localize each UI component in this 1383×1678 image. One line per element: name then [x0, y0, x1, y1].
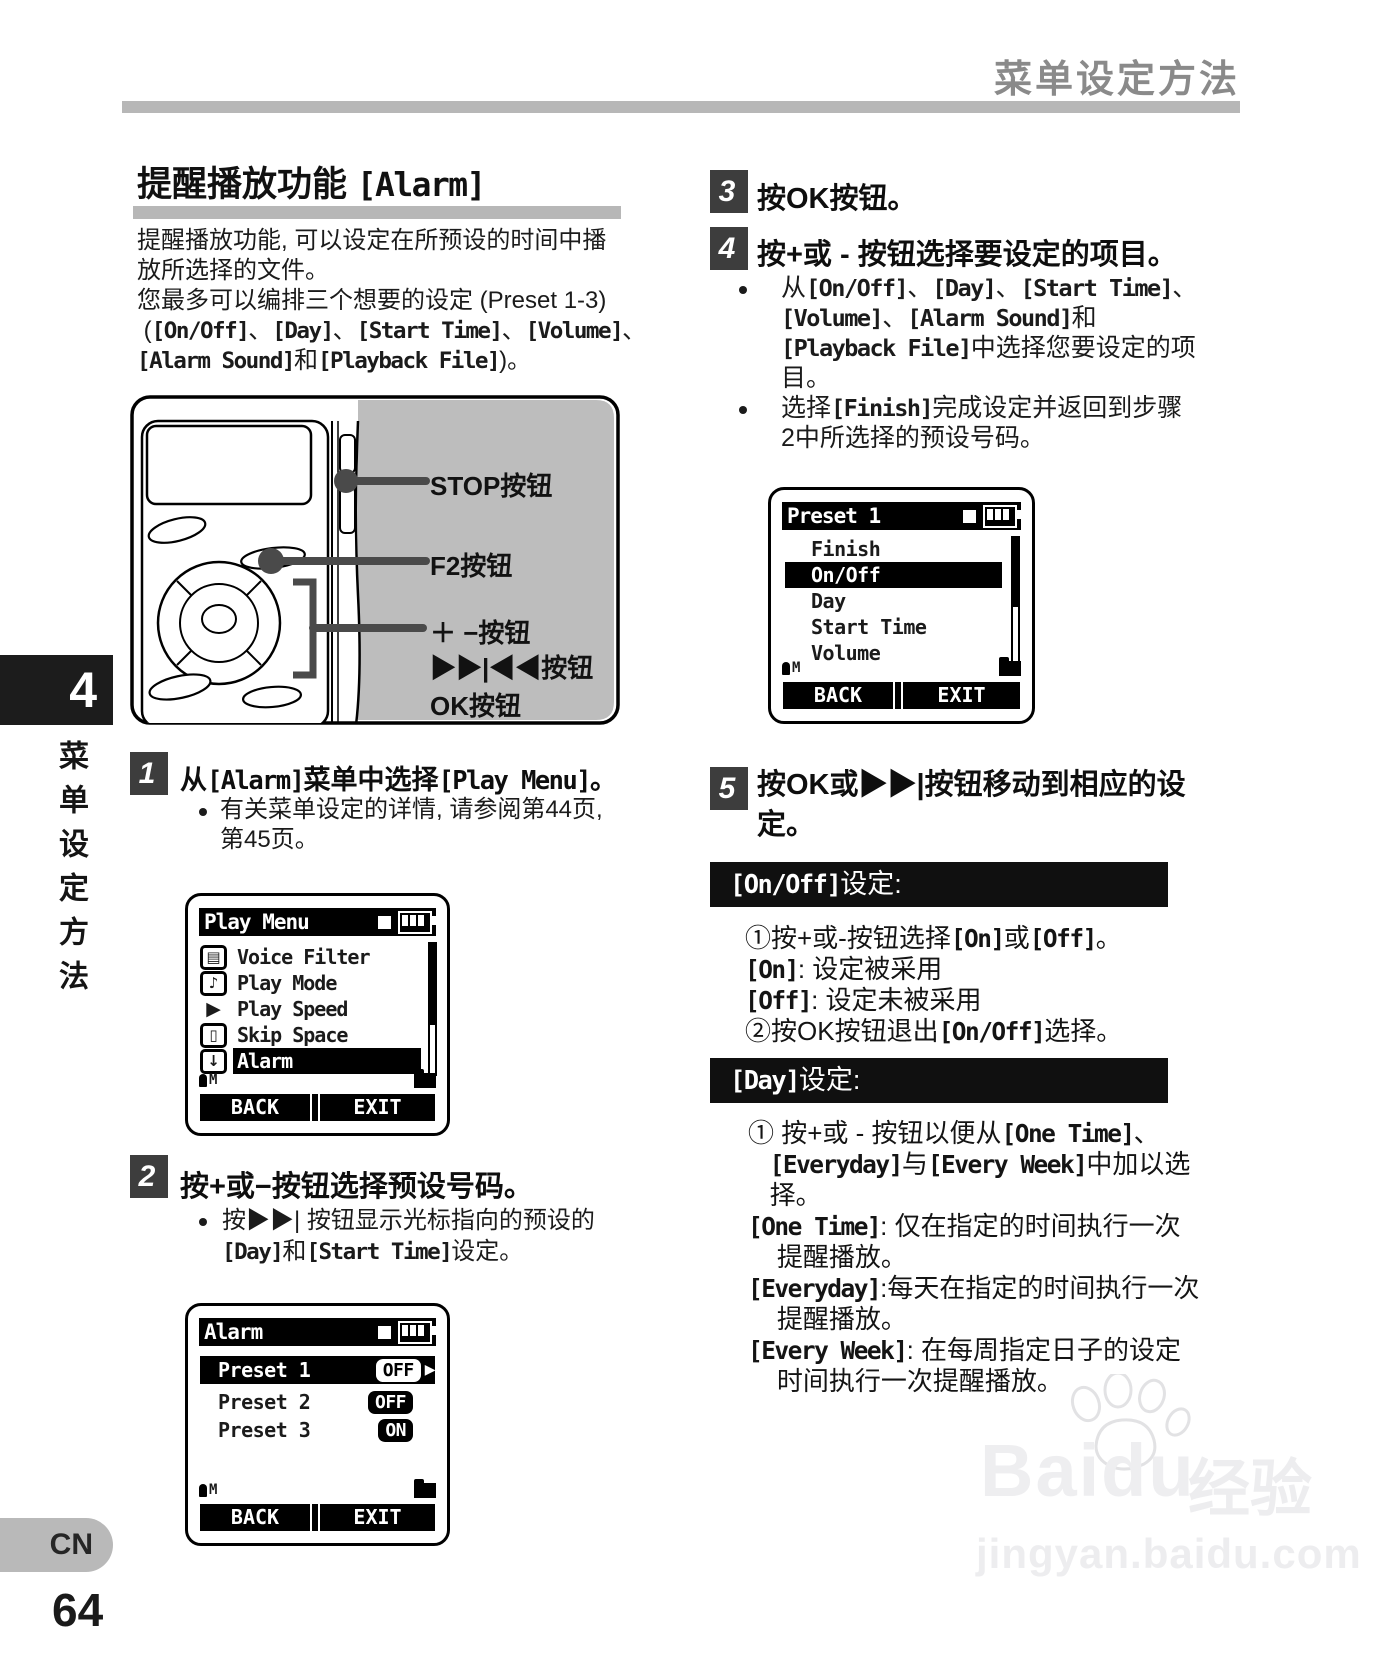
- softkey-divider: [312, 1094, 318, 1121]
- alarm-row-preset-2: Preset 2 OFF: [200, 1388, 435, 1416]
- intro-line: 提醒播放功能, 可以设定在所预设的时间中播: [137, 226, 646, 256]
- bullet-line: 第45页。: [220, 825, 603, 855]
- body-line: [Off]: 设定未被采用: [745, 985, 1122, 1016]
- body-line: [Everyday]与[Every Week]中加以选: [748, 1149, 1199, 1180]
- lcd-status-row: M: [199, 1071, 436, 1089]
- lcd-title-bar: Preset 1: [782, 502, 1021, 530]
- stop-status-icon: [378, 1326, 391, 1339]
- lcd-scrollbar: [428, 942, 437, 1076]
- step-3-number: 3: [710, 170, 748, 213]
- step-4-number: 4: [710, 227, 748, 270]
- step-4-heading: 按+或 - 按钮选择要设定的项目。: [757, 231, 1177, 273]
- body-line: [Every Week]: 在每周指定日子的设定: [748, 1335, 1199, 1366]
- mic-mode-icon: M: [199, 1483, 217, 1497]
- mic-mode-label: M: [792, 661, 800, 675]
- onoff-section-body: ①按+或-按钮选择[On]或[Off]。 [On]: 设定被采用 [Off]: …: [745, 923, 1122, 1047]
- lcd-status-row: M: [782, 659, 1021, 677]
- language-tab: CN: [0, 1518, 113, 1572]
- stop-button-label: STOP按钮: [430, 466, 552, 503]
- menu-item-label: Voice Filter: [233, 944, 374, 970]
- chapter-number-tab: 4: [0, 655, 113, 725]
- preset-item-finish: Finish: [785, 536, 1002, 562]
- baidu-jingyan-watermark: Baidu 经验 jingyan.baidu.com: [960, 1380, 1360, 1630]
- preset-label: Preset 2: [218, 1390, 310, 1414]
- bullet-line: 从[On/Off]、[Day]、[Start Time]、: [781, 273, 1197, 303]
- onoff-section-banner: [On/Off]设定:: [710, 862, 1168, 907]
- day-section-body: ① 按+或 - 按钮以便从[One Time]、 [Everyday]与[Eve…: [748, 1118, 1199, 1397]
- alarm-row-preset-3: Preset 3 ON: [200, 1416, 435, 1444]
- softkey-divider: [895, 682, 901, 709]
- bullet-line: 按▶▶| 按钮显示光标指向的预设的: [222, 1205, 595, 1236]
- preset-item-start-time: Start Time: [785, 614, 1002, 640]
- device-ok-button: [202, 605, 236, 633]
- lcd-title-bar: Alarm: [199, 1318, 436, 1346]
- softkey-back: BACK: [200, 1504, 310, 1531]
- lcd-alarm-screen: Alarm Preset 1 OFF ▶ Preset 2 OFF Preset…: [185, 1303, 450, 1546]
- step-5-number: 5: [710, 767, 748, 810]
- mic-mode-label: M: [209, 1073, 217, 1087]
- bullet-line: 目。: [781, 363, 1197, 393]
- lcd-status-row: M: [199, 1481, 436, 1499]
- preset-label: Preset 3: [218, 1418, 310, 1442]
- body-line: 择。: [748, 1180, 1199, 1211]
- bullet-line: 有关菜单设定的详情, 请参阅第44页,: [220, 795, 603, 825]
- body-line: 提醒播放。: [748, 1304, 1199, 1335]
- lcd-title-text: Alarm: [199, 1320, 378, 1344]
- intro-line: 放所选择的文件。: [137, 256, 646, 286]
- bullet-line: [Volume]、[Alarm Sound]和: [781, 303, 1197, 333]
- menu-item-play-speed: ▶ Play Speed: [200, 996, 421, 1022]
- ok-button-label: OK按钮: [430, 686, 521, 723]
- menu-item-voice-filter: ▤ Voice Filter: [200, 944, 421, 970]
- step-1-number: 1: [130, 752, 168, 795]
- menu-item-label: Play Mode: [233, 970, 340, 996]
- bullet-dot: [199, 1218, 207, 1226]
- preset-value-badge: OFF: [368, 1391, 413, 1414]
- battery-icon: [398, 1321, 432, 1344]
- body-line: [On]: 设定被采用: [745, 954, 1122, 985]
- battery-icon: [983, 505, 1017, 528]
- header-rule: [122, 101, 1240, 113]
- softkey-exit: EXIT: [320, 1094, 435, 1121]
- step-2-number: 2: [130, 1155, 168, 1198]
- bullet-line: 选择[Finish]完成设定并返回到步骤: [781, 393, 1182, 423]
- body-line: ②按OK按钮退出[On/Off]选择。: [745, 1016, 1122, 1047]
- bullet-dot: [739, 286, 747, 294]
- lcd-title-text: Play Menu: [199, 910, 378, 934]
- mic-mode-icon: M: [199, 1073, 217, 1087]
- f2-button-label: F2按钮: [430, 546, 512, 583]
- watermark-brand: Baidu: [980, 1428, 1196, 1513]
- page-number: 64: [52, 1583, 103, 1637]
- sidebar-vertical-title: 菜单设定方法: [48, 740, 92, 1004]
- microphone-icon: ♪: [200, 971, 227, 996]
- device-side-button: [340, 487, 355, 533]
- watermark-url: jingyan.baidu.com: [976, 1530, 1362, 1578]
- step-1-heading: 从[Alarm]菜单中选择[Play Menu]。: [180, 758, 617, 797]
- battery-icon: [398, 911, 432, 934]
- lcd-title-text: Preset 1: [782, 504, 963, 528]
- menu-item-label: Skip Space: [233, 1022, 351, 1048]
- page-header-title: 菜单设定方法: [600, 48, 1240, 103]
- lcd-play-menu-screen: Play Menu ▤ Voice Filter ♪ Play Mode ▶ P…: [185, 893, 450, 1136]
- document-icon: ▤: [200, 945, 227, 970]
- preset-value-badge: OFF: [376, 1359, 421, 1382]
- softkey-back: BACK: [200, 1094, 310, 1121]
- softkey-exit: EXIT: [903, 682, 1020, 709]
- intro-line: ([On/Off]、[Day]、[Start Time]、[Volume]、: [137, 316, 646, 346]
- bullet-line: 2中所选择的预设号码。: [781, 423, 1182, 453]
- device-display: [147, 426, 311, 504]
- watermark-brand-cn: 经验: [1188, 1438, 1312, 1528]
- body-line: ① 按+或 - 按钮以便从[One Time]、: [748, 1118, 1199, 1149]
- preset-value-badge: ON: [378, 1419, 413, 1442]
- intro-line: [Alarm Sound]和[Playback File])。: [137, 346, 646, 376]
- preset-label: Preset 1: [218, 1358, 310, 1382]
- step-4-bullet-2: 选择[Finish]完成设定并返回到步骤 2中所选择的预设号码。: [781, 393, 1182, 453]
- preset-item-onoff-selected: On/Off: [785, 562, 1002, 588]
- alarm-row-preset-1: Preset 1 OFF ▶: [200, 1356, 435, 1384]
- play-icon: ▶: [200, 997, 227, 1022]
- day-section-banner: [Day]设定:: [710, 1058, 1168, 1103]
- arrow-down-icon: ↓: [200, 1049, 227, 1074]
- section-title: 提醒播放功能 [Alarm]: [137, 156, 485, 207]
- step-1-bullet: 有关菜单设定的详情, 请参阅第44页, 第45页。: [220, 795, 603, 855]
- body-line: [Everyday]:每天在指定的时间执行一次: [748, 1273, 1199, 1304]
- softkey-exit: EXIT: [320, 1504, 435, 1531]
- body-line: 提醒播放。: [748, 1242, 1199, 1273]
- monitor-icon: ▯: [200, 1023, 227, 1048]
- body-line: [One Time]: 仅在指定的时间执行一次: [748, 1211, 1199, 1242]
- chevron-right-icon: ▶: [425, 1362, 435, 1378]
- folder-icon: [414, 1483, 436, 1498]
- lcd-title-bar: Play Menu: [199, 908, 436, 936]
- heading-line: 定。: [757, 805, 1186, 845]
- bullet-line: [Day]和[Start Time]设定。: [222, 1236, 595, 1268]
- folder-icon: [999, 661, 1021, 676]
- heading-line: 按OK或▶▶|按钮移动到相应的设: [757, 765, 1186, 805]
- bullet-dot: [739, 406, 747, 414]
- menu-item-label: Play Speed: [233, 996, 351, 1022]
- body-line: ①按+或-按钮选择[On]或[Off]。: [745, 923, 1122, 954]
- stop-status-icon: [378, 916, 391, 929]
- step-5-heading: 按OK或▶▶|按钮移动到相应的设 定。: [757, 765, 1186, 845]
- stop-status-icon: [963, 510, 976, 523]
- step-2-heading: 按+或−按钮选择预设号码。: [180, 1163, 533, 1205]
- lcd-scrollbar: [1011, 536, 1020, 666]
- step-2-bullet: 按▶▶| 按钮显示光标指向的预设的 [Day]和[Start Time]设定。: [222, 1205, 595, 1268]
- preset-item-day: Day: [785, 588, 1002, 614]
- mic-mode-icon: M: [782, 661, 800, 675]
- bullet-line: [Playback File]中选择您要设定的项: [781, 333, 1197, 363]
- intro-paragraph: 提醒播放功能, 可以设定在所预设的时间中播 放所选择的文件。 您最多可以编排三个…: [137, 226, 646, 376]
- folder-icon: [414, 1073, 436, 1088]
- softkey-divider: [312, 1504, 318, 1531]
- intro-line: 您最多可以编排三个想要的设定 (Preset 1-3): [137, 286, 646, 316]
- manual-page: { "header": { "title": "菜单设定方法" }, "side…: [0, 0, 1383, 1678]
- device-side-stop-button: [340, 435, 355, 473]
- section-title-rule: [133, 206, 621, 219]
- step-3-heading: 按OK按钮。: [757, 175, 917, 217]
- step-4-bullet-1: 从[On/Off]、[Day]、[Start Time]、 [Volume]、[…: [781, 273, 1197, 393]
- bullet-dot: [199, 808, 207, 816]
- skip-buttons-label: ▶▶|◀◀按钮: [430, 648, 593, 685]
- lcd-preset-screen: Preset 1 Finish On/Off Day Start Time Vo…: [768, 487, 1035, 724]
- plus-minus-button-label: ＋ −按钮: [430, 613, 530, 650]
- mic-mode-label: M: [209, 1483, 217, 1497]
- menu-item-skip-space: ▯ Skip Space: [200, 1022, 421, 1048]
- menu-item-play-mode: ♪ Play Mode: [200, 970, 421, 996]
- softkey-back: BACK: [783, 682, 893, 709]
